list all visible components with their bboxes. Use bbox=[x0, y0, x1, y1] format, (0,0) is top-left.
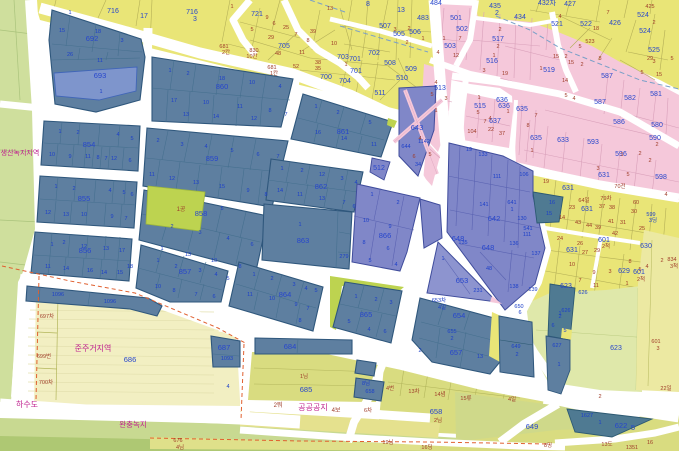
svg-text:5: 5 bbox=[626, 172, 629, 178]
svg-text:60: 60 bbox=[633, 200, 639, 206]
svg-text:3: 3 bbox=[120, 38, 123, 44]
svg-text:484: 484 bbox=[430, 0, 442, 7]
svg-text:6: 6 bbox=[256, 152, 259, 158]
svg-text:1: 1 bbox=[168, 68, 171, 74]
svg-text:6: 6 bbox=[212, 294, 215, 300]
svg-text:5: 5 bbox=[631, 423, 635, 432]
svg-text:13: 13 bbox=[477, 354, 483, 360]
svg-text:7: 7 bbox=[124, 216, 127, 222]
svg-text:13차: 13차 bbox=[408, 387, 419, 395]
svg-text:601: 601 bbox=[598, 237, 610, 244]
svg-text:506: 506 bbox=[409, 29, 421, 36]
svg-text:517: 517 bbox=[492, 36, 504, 43]
svg-text:12: 12 bbox=[453, 53, 459, 59]
svg-text:38: 38 bbox=[609, 205, 615, 211]
svg-text:39: 39 bbox=[310, 29, 316, 35]
svg-text:5: 5 bbox=[640, 70, 643, 76]
svg-text:1096: 1096 bbox=[104, 299, 116, 305]
svg-text:2: 2 bbox=[405, 40, 408, 46]
svg-text:24: 24 bbox=[557, 236, 563, 242]
svg-text:4: 4 bbox=[304, 286, 307, 292]
svg-text:1: 1 bbox=[344, 62, 347, 68]
svg-text:631: 631 bbox=[562, 185, 574, 192]
svg-text:8: 8 bbox=[628, 259, 631, 265]
svg-text:2: 2 bbox=[62, 240, 65, 246]
svg-text:11: 11 bbox=[45, 264, 51, 270]
svg-text:13: 13 bbox=[103, 246, 109, 252]
svg-text:1: 1 bbox=[441, 256, 444, 262]
svg-text:524: 524 bbox=[637, 12, 649, 19]
svg-text:658: 658 bbox=[430, 407, 443, 416]
svg-text:6: 6 bbox=[250, 242, 253, 248]
svg-text:4님: 4님 bbox=[176, 443, 184, 451]
svg-text:7: 7 bbox=[194, 292, 197, 298]
svg-text:8: 8 bbox=[306, 38, 309, 44]
svg-text:9: 9 bbox=[246, 188, 249, 194]
svg-text:5: 5 bbox=[230, 148, 233, 154]
svg-text:1: 1 bbox=[506, 109, 509, 115]
svg-text:1: 1 bbox=[354, 294, 357, 300]
svg-text:643: 643 bbox=[411, 123, 424, 132]
svg-text:133: 133 bbox=[478, 152, 487, 158]
svg-text:19: 19 bbox=[502, 71, 508, 77]
svg-text:649: 649 bbox=[526, 422, 539, 431]
svg-text:648: 648 bbox=[482, 243, 495, 252]
svg-text:501: 501 bbox=[450, 15, 462, 22]
svg-text:700차: 700차 bbox=[39, 378, 53, 386]
svg-text:685: 685 bbox=[300, 385, 313, 394]
svg-text:857: 857 bbox=[179, 267, 192, 276]
svg-text:11: 11 bbox=[299, 50, 305, 56]
svg-text:425: 425 bbox=[645, 4, 654, 10]
svg-text:654: 654 bbox=[453, 311, 466, 320]
svg-text:7: 7 bbox=[342, 200, 345, 206]
svg-text:10: 10 bbox=[363, 218, 369, 224]
svg-text:2: 2 bbox=[72, 186, 75, 192]
svg-text:8: 8 bbox=[264, 192, 267, 198]
svg-text:15: 15 bbox=[59, 28, 65, 34]
svg-text:702: 702 bbox=[368, 50, 380, 57]
svg-text:2: 2 bbox=[300, 168, 303, 174]
svg-text:생산녹지지역: 생산녹지지역 bbox=[1, 148, 40, 157]
svg-text:준주거지역: 준주거지역 bbox=[75, 343, 112, 353]
svg-text:12: 12 bbox=[251, 116, 257, 122]
svg-text:5: 5 bbox=[314, 288, 317, 294]
svg-text:5: 5 bbox=[428, 152, 431, 158]
svg-text:8: 8 bbox=[238, 264, 241, 270]
svg-text:598: 598 bbox=[655, 174, 667, 181]
svg-text:8딩: 8딩 bbox=[544, 441, 552, 449]
svg-text:48: 48 bbox=[486, 266, 492, 272]
svg-text:10: 10 bbox=[211, 258, 217, 264]
svg-text:111: 111 bbox=[493, 174, 501, 180]
svg-text:13: 13 bbox=[397, 7, 405, 14]
svg-text:676: 676 bbox=[173, 438, 182, 444]
svg-text:623: 623 bbox=[560, 283, 572, 290]
svg-text:9: 9 bbox=[294, 302, 297, 308]
svg-text:590: 590 bbox=[649, 135, 661, 142]
svg-text:2: 2 bbox=[498, 27, 501, 33]
svg-text:16딩: 16딩 bbox=[421, 443, 432, 451]
svg-text:1096: 1096 bbox=[52, 292, 64, 298]
svg-text:17: 17 bbox=[171, 98, 177, 104]
svg-text:834: 834 bbox=[667, 257, 676, 263]
svg-text:1: 1 bbox=[620, 152, 623, 158]
svg-text:26: 26 bbox=[67, 52, 73, 58]
svg-text:1: 1 bbox=[298, 222, 301, 228]
svg-text:7: 7 bbox=[458, 36, 461, 42]
svg-text:2님: 2님 bbox=[434, 416, 442, 424]
svg-text:48: 48 bbox=[275, 51, 281, 57]
svg-text:1: 1 bbox=[434, 108, 437, 114]
svg-text:2: 2 bbox=[450, 336, 453, 342]
svg-text:508: 508 bbox=[384, 60, 396, 67]
svg-text:4: 4 bbox=[434, 80, 437, 86]
svg-text:693: 693 bbox=[94, 71, 107, 80]
svg-text:7: 7 bbox=[306, 306, 309, 312]
svg-text:14: 14 bbox=[277, 188, 283, 194]
svg-text:4: 4 bbox=[488, 116, 491, 122]
svg-text:19: 19 bbox=[466, 147, 472, 153]
svg-text:1: 1 bbox=[230, 4, 233, 10]
svg-text:4: 4 bbox=[394, 262, 397, 268]
svg-text:4: 4 bbox=[572, 96, 575, 102]
svg-text:10칸: 10칸 bbox=[246, 53, 257, 60]
svg-text:2: 2 bbox=[648, 158, 651, 164]
svg-text:7: 7 bbox=[294, 32, 297, 38]
svg-text:7: 7 bbox=[578, 278, 581, 284]
svg-text:721: 721 bbox=[251, 11, 263, 18]
svg-text:5: 5 bbox=[638, 267, 641, 273]
svg-text:1: 1 bbox=[280, 166, 283, 172]
svg-text:2: 2 bbox=[655, 142, 658, 148]
svg-text:39: 39 bbox=[595, 225, 601, 231]
svg-text:4: 4 bbox=[436, 50, 439, 56]
svg-text:524: 524 bbox=[639, 28, 651, 35]
svg-text:629: 629 bbox=[618, 268, 630, 275]
svg-text:2칸: 2칸 bbox=[222, 49, 230, 56]
svg-text:9: 9 bbox=[592, 270, 595, 276]
svg-text:1: 1 bbox=[160, 246, 163, 252]
svg-text:13: 13 bbox=[193, 180, 199, 186]
svg-text:2: 2 bbox=[76, 130, 79, 136]
svg-text:6: 6 bbox=[386, 246, 389, 252]
svg-text:631: 631 bbox=[566, 247, 578, 254]
svg-text:586: 586 bbox=[613, 119, 625, 126]
svg-text:8: 8 bbox=[268, 108, 271, 114]
svg-text:16: 16 bbox=[315, 130, 321, 136]
svg-text:23: 23 bbox=[569, 205, 575, 211]
svg-text:139: 139 bbox=[528, 287, 537, 293]
svg-text:7: 7 bbox=[483, 119, 486, 125]
svg-text:4: 4 bbox=[226, 236, 229, 242]
svg-text:622: 622 bbox=[615, 421, 628, 430]
svg-text:701: 701 bbox=[350, 68, 362, 75]
svg-text:10: 10 bbox=[249, 80, 255, 86]
svg-text:861: 861 bbox=[337, 127, 350, 136]
svg-text:18: 18 bbox=[127, 264, 133, 270]
svg-text:582: 582 bbox=[624, 95, 636, 102]
svg-text:4번: 4번 bbox=[386, 384, 394, 392]
svg-text:426: 426 bbox=[609, 20, 621, 27]
svg-text:10: 10 bbox=[49, 152, 55, 158]
svg-text:5: 5 bbox=[368, 258, 371, 264]
svg-text:655: 655 bbox=[447, 329, 456, 335]
svg-text:587: 587 bbox=[601, 73, 613, 80]
svg-text:11: 11 bbox=[297, 192, 303, 198]
svg-text:5: 5 bbox=[670, 56, 673, 62]
svg-text:25: 25 bbox=[283, 25, 289, 31]
svg-text:697차: 697차 bbox=[40, 312, 54, 320]
svg-text:12: 12 bbox=[81, 244, 87, 250]
svg-text:2뭐: 2뭐 bbox=[274, 401, 283, 409]
svg-text:9: 9 bbox=[265, 15, 268, 21]
svg-text:519: 519 bbox=[543, 67, 555, 74]
svg-text:43: 43 bbox=[575, 220, 581, 226]
svg-text:630: 630 bbox=[640, 243, 652, 250]
svg-text:511: 511 bbox=[374, 90, 385, 97]
svg-text:5: 5 bbox=[563, 328, 566, 334]
svg-text:7: 7 bbox=[284, 112, 287, 118]
svg-text:587: 587 bbox=[594, 99, 606, 106]
svg-text:3: 3 bbox=[198, 230, 201, 236]
svg-text:11: 11 bbox=[149, 172, 155, 178]
svg-text:14: 14 bbox=[562, 78, 568, 84]
svg-text:4: 4 bbox=[558, 14, 561, 20]
svg-text:17: 17 bbox=[140, 13, 148, 20]
svg-text:581: 581 bbox=[650, 91, 662, 98]
svg-text:11: 11 bbox=[371, 142, 377, 148]
svg-text:631: 631 bbox=[598, 172, 610, 179]
svg-text:1: 1 bbox=[477, 95, 480, 101]
svg-text:135: 135 bbox=[458, 240, 467, 246]
svg-text:512: 512 bbox=[373, 165, 385, 172]
svg-text:29: 29 bbox=[647, 56, 653, 62]
svg-text:435: 435 bbox=[489, 3, 501, 10]
svg-text:4: 4 bbox=[278, 84, 281, 90]
svg-text:649: 649 bbox=[511, 344, 520, 350]
svg-text:1: 1 bbox=[54, 184, 57, 190]
svg-text:10: 10 bbox=[155, 284, 161, 290]
svg-text:6차: 6차 bbox=[364, 406, 372, 414]
svg-text:2: 2 bbox=[156, 138, 159, 144]
svg-text:19님: 19님 bbox=[382, 438, 393, 446]
svg-text:15: 15 bbox=[546, 211, 552, 217]
svg-text:3: 3 bbox=[596, 166, 599, 172]
svg-text:44: 44 bbox=[586, 223, 592, 229]
svg-text:1: 1 bbox=[558, 311, 561, 317]
svg-text:8님: 8님 bbox=[362, 379, 370, 387]
svg-text:1093: 1093 bbox=[221, 356, 233, 362]
svg-text:601: 601 bbox=[651, 339, 660, 345]
svg-text:52: 52 bbox=[293, 64, 299, 70]
svg-text:684: 684 bbox=[284, 342, 297, 351]
svg-text:4: 4 bbox=[645, 264, 648, 270]
svg-text:15: 15 bbox=[568, 60, 574, 66]
svg-text:10: 10 bbox=[569, 262, 575, 268]
svg-text:106: 106 bbox=[519, 172, 528, 178]
svg-text:104: 104 bbox=[467, 129, 476, 135]
svg-text:8: 8 bbox=[96, 155, 99, 161]
svg-text:37: 37 bbox=[499, 131, 505, 137]
svg-text:5: 5 bbox=[122, 190, 125, 196]
svg-text:7: 7 bbox=[606, 10, 609, 16]
svg-text:5: 5 bbox=[130, 136, 133, 142]
svg-text:687: 687 bbox=[218, 343, 231, 352]
svg-text:3: 3 bbox=[193, 16, 197, 23]
svg-text:11: 11 bbox=[237, 104, 243, 110]
svg-text:35: 35 bbox=[315, 66, 321, 72]
svg-text:716: 716 bbox=[107, 8, 119, 15]
svg-text:635: 635 bbox=[530, 135, 542, 142]
svg-text:515: 515 bbox=[474, 103, 486, 110]
svg-text:1공: 1공 bbox=[177, 206, 186, 213]
svg-text:2: 2 bbox=[515, 352, 518, 358]
svg-text:4: 4 bbox=[418, 136, 421, 142]
svg-text:7: 7 bbox=[276, 154, 279, 160]
svg-text:15류: 15류 bbox=[460, 395, 471, 402]
svg-text:522: 522 bbox=[580, 21, 592, 28]
svg-text:3: 3 bbox=[482, 68, 485, 74]
svg-text:858: 858 bbox=[195, 209, 208, 218]
svg-text:703: 703 bbox=[337, 54, 349, 61]
svg-text:3: 3 bbox=[608, 269, 611, 275]
svg-text:427: 427 bbox=[564, 1, 576, 8]
svg-text:8: 8 bbox=[366, 1, 370, 8]
svg-text:700: 700 bbox=[320, 74, 332, 81]
svg-text:2척: 2척 bbox=[637, 275, 645, 283]
svg-text:699번: 699번 bbox=[37, 352, 51, 360]
svg-text:1: 1 bbox=[557, 362, 560, 368]
svg-text:705: 705 bbox=[278, 43, 290, 50]
svg-text:11: 11 bbox=[97, 58, 103, 64]
svg-text:1: 1 bbox=[50, 242, 53, 248]
svg-text:3: 3 bbox=[444, 96, 447, 102]
svg-text:2: 2 bbox=[660, 258, 663, 264]
svg-text:5: 5 bbox=[430, 92, 433, 98]
svg-text:1: 1 bbox=[370, 192, 373, 198]
svg-text:4: 4 bbox=[214, 272, 217, 278]
svg-text:5: 5 bbox=[368, 120, 371, 126]
svg-text:642: 642 bbox=[488, 214, 501, 223]
svg-text:10: 10 bbox=[269, 296, 275, 302]
svg-text:1: 1 bbox=[492, 53, 495, 59]
svg-text:17: 17 bbox=[119, 248, 125, 254]
svg-text:653차: 653차 bbox=[432, 296, 446, 304]
svg-text:13도: 13도 bbox=[601, 441, 612, 448]
svg-text:635: 635 bbox=[516, 106, 528, 113]
svg-text:15: 15 bbox=[117, 270, 123, 276]
svg-text:523: 523 bbox=[585, 39, 594, 45]
svg-text:6: 6 bbox=[551, 323, 554, 329]
svg-text:626: 626 bbox=[561, 308, 570, 314]
svg-text:18: 18 bbox=[95, 29, 101, 35]
svg-text:1: 1 bbox=[99, 89, 102, 95]
svg-text:37: 37 bbox=[599, 204, 605, 210]
svg-text:8: 8 bbox=[526, 123, 529, 129]
svg-text:141: 141 bbox=[479, 202, 488, 208]
svg-text:513: 513 bbox=[434, 85, 446, 92]
svg-text:279: 279 bbox=[339, 254, 348, 260]
svg-text:9: 9 bbox=[68, 154, 71, 160]
svg-text:29: 29 bbox=[268, 35, 274, 41]
svg-text:11: 11 bbox=[85, 154, 91, 160]
svg-text:14: 14 bbox=[559, 215, 565, 221]
svg-text:5: 5 bbox=[476, 110, 479, 116]
svg-text:31: 31 bbox=[620, 220, 626, 226]
svg-text:7: 7 bbox=[534, 113, 537, 119]
svg-text:626: 626 bbox=[578, 290, 587, 296]
svg-text:4보: 4보 bbox=[332, 407, 341, 414]
svg-text:4: 4 bbox=[664, 192, 667, 198]
svg-text:7: 7 bbox=[104, 156, 107, 162]
svg-text:18: 18 bbox=[219, 76, 225, 82]
svg-text:2: 2 bbox=[407, 26, 410, 32]
svg-text:1: 1 bbox=[314, 104, 317, 110]
svg-text:4: 4 bbox=[367, 327, 370, 333]
svg-text:6: 6 bbox=[412, 154, 415, 160]
svg-text:13: 13 bbox=[185, 252, 191, 258]
svg-text:6: 6 bbox=[352, 204, 355, 210]
svg-text:434: 434 bbox=[514, 14, 526, 21]
svg-text:509: 509 bbox=[405, 66, 417, 73]
svg-text:516: 516 bbox=[486, 58, 498, 65]
svg-text:2: 2 bbox=[374, 297, 377, 303]
svg-text:860: 860 bbox=[216, 82, 229, 91]
svg-text:686: 686 bbox=[124, 355, 137, 364]
svg-text:16: 16 bbox=[87, 268, 93, 274]
svg-text:3: 3 bbox=[180, 142, 183, 148]
svg-text:27: 27 bbox=[582, 250, 588, 256]
svg-text:9: 9 bbox=[110, 214, 113, 220]
svg-text:2척: 2척 bbox=[602, 242, 610, 250]
svg-text:11: 11 bbox=[593, 283, 599, 289]
svg-text:657: 657 bbox=[450, 348, 463, 357]
svg-text:14: 14 bbox=[341, 136, 347, 142]
svg-text:34: 34 bbox=[415, 162, 421, 168]
svg-text:1: 1 bbox=[510, 207, 513, 213]
svg-text:공공공지: 공공공지 bbox=[298, 403, 327, 412]
svg-text:5: 5 bbox=[347, 319, 350, 325]
svg-text:859: 859 bbox=[206, 154, 219, 163]
svg-text:503: 503 bbox=[444, 43, 456, 50]
svg-text:10: 10 bbox=[203, 100, 209, 106]
svg-text:8: 8 bbox=[298, 318, 301, 324]
svg-text:1: 1 bbox=[442, 36, 445, 42]
svg-text:9: 9 bbox=[388, 224, 391, 230]
svg-text:13: 13 bbox=[327, 6, 333, 12]
svg-text:6: 6 bbox=[130, 192, 133, 198]
svg-text:16: 16 bbox=[549, 200, 555, 206]
svg-text:507: 507 bbox=[379, 23, 391, 30]
svg-text:19: 19 bbox=[543, 179, 549, 185]
svg-text:866: 866 bbox=[379, 231, 392, 240]
svg-text:5: 5 bbox=[226, 276, 229, 282]
svg-text:29: 29 bbox=[594, 248, 600, 254]
svg-text:3딩: 3딩 bbox=[649, 216, 657, 224]
svg-text:10: 10 bbox=[331, 41, 337, 47]
svg-text:8: 8 bbox=[598, 56, 601, 62]
svg-text:3: 3 bbox=[292, 282, 295, 288]
svg-text:16: 16 bbox=[647, 440, 653, 446]
svg-text:4일: 4일 bbox=[438, 303, 446, 311]
svg-text:633: 633 bbox=[557, 137, 569, 144]
svg-text:41: 41 bbox=[608, 219, 614, 225]
svg-text:137: 137 bbox=[531, 251, 540, 257]
svg-text:26: 26 bbox=[577, 241, 583, 247]
svg-text:15: 15 bbox=[656, 72, 662, 78]
svg-text:1: 1 bbox=[625, 281, 628, 287]
